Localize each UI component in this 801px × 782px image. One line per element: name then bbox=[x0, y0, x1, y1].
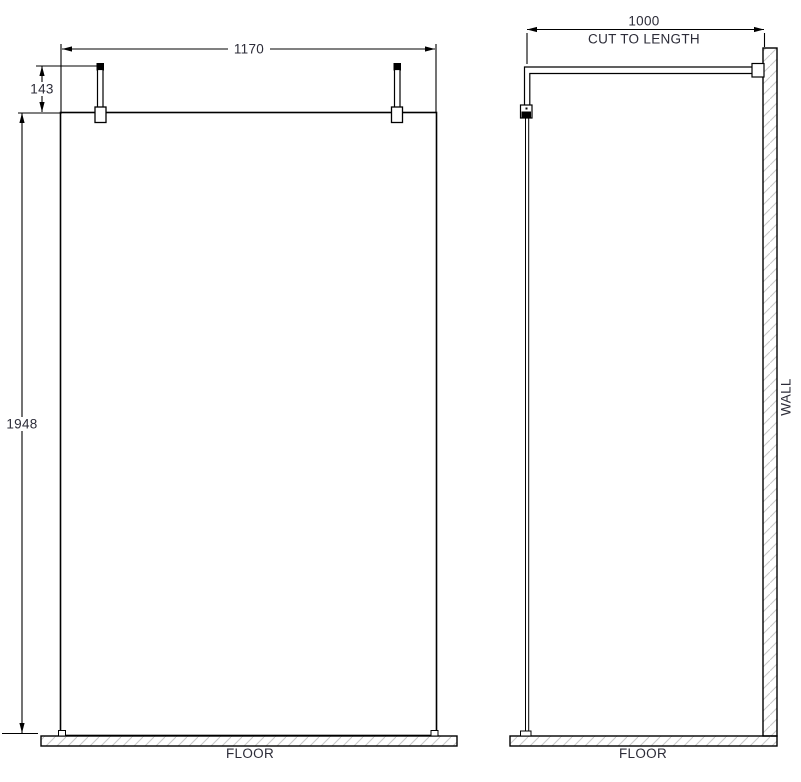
arrowhead-up bbox=[39, 66, 44, 76]
post-body-left bbox=[98, 70, 104, 108]
foot-block-right bbox=[431, 731, 438, 737]
glass-clamp-right bbox=[392, 107, 403, 123]
dim-post-height-label: 143 bbox=[30, 82, 53, 97]
wall-bracket bbox=[752, 64, 764, 78]
arrowhead-down bbox=[39, 102, 44, 112]
wall-label: WALL bbox=[779, 378, 794, 416]
front-view: 1170 143 1948 FLOOR bbox=[2, 42, 457, 762]
post-body-right bbox=[395, 70, 401, 108]
technical-drawing-canvas: 1170 143 1948 FLOOR bbox=[0, 0, 801, 782]
floor-label-side: FLOOR bbox=[619, 746, 667, 761]
arrowhead-down bbox=[19, 723, 24, 733]
glass-panel-side bbox=[526, 107, 529, 732]
shower-screen-drawing: 1170 143 1948 FLOOR bbox=[0, 0, 801, 782]
glass-panel-front bbox=[61, 113, 437, 736]
dimension-post-height: 143 bbox=[28, 66, 103, 112]
arrowhead-up bbox=[19, 113, 24, 123]
dimension-height: 1948 bbox=[2, 113, 62, 734]
dim-height-label: 1948 bbox=[6, 417, 37, 432]
glass-clamp-left bbox=[95, 107, 106, 123]
support-post-left bbox=[95, 63, 106, 123]
dim-depth-label: 1000 bbox=[628, 14, 659, 29]
floor-section-side bbox=[510, 736, 777, 746]
foot-block-left bbox=[59, 731, 66, 737]
support-arm bbox=[521, 64, 765, 119]
dimension-depth: 1000 CUT TO LENGTH bbox=[527, 14, 765, 65]
dimension-width: 1170 bbox=[62, 42, 435, 57]
glass-clamp-side bbox=[521, 105, 533, 118]
arrowhead-right bbox=[754, 27, 764, 32]
arrowhead-right bbox=[425, 46, 435, 51]
wall-section bbox=[763, 48, 777, 736]
floor-label-front: FLOOR bbox=[226, 746, 274, 761]
foot-block-side bbox=[521, 731, 532, 736]
arrowhead-left bbox=[527, 27, 537, 32]
dim-depth-note: CUT TO LENGTH bbox=[588, 32, 700, 47]
support-post-right bbox=[392, 63, 403, 123]
dim-width-label: 1170 bbox=[234, 42, 264, 57]
floor-section-front bbox=[41, 736, 457, 746]
side-view: 1000 CUT TO LENGTH WALL FLOOR bbox=[510, 14, 794, 762]
arrowhead-left bbox=[62, 46, 72, 51]
